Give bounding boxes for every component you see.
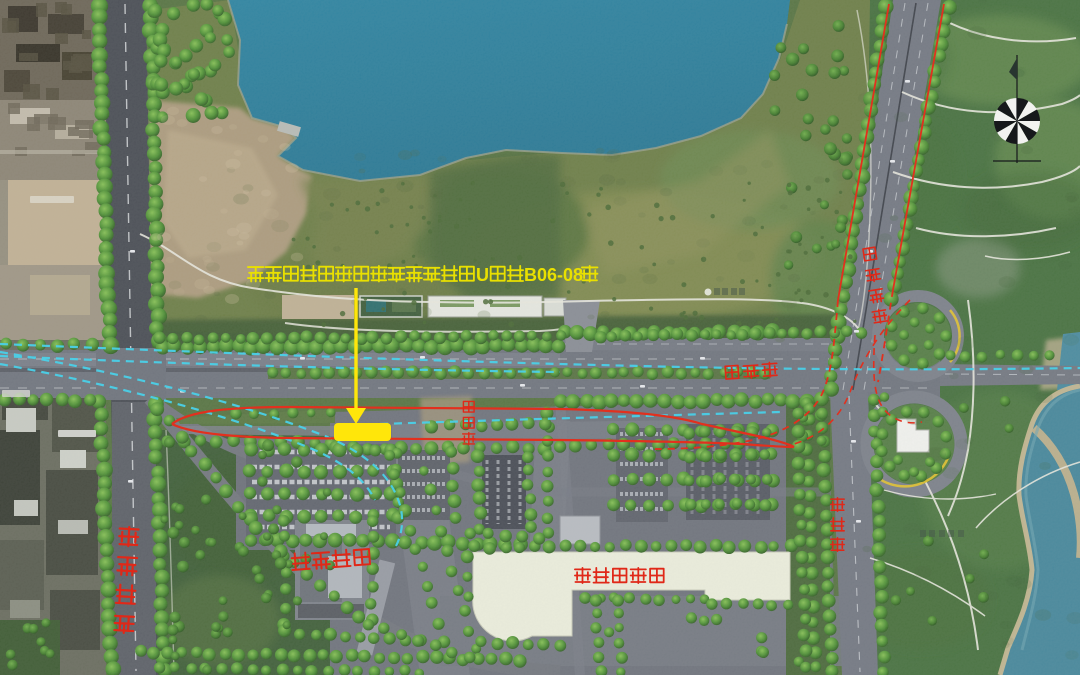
svg-text:B06-08: B06-08 — [524, 265, 583, 285]
svg-text:U: U — [476, 265, 489, 285]
